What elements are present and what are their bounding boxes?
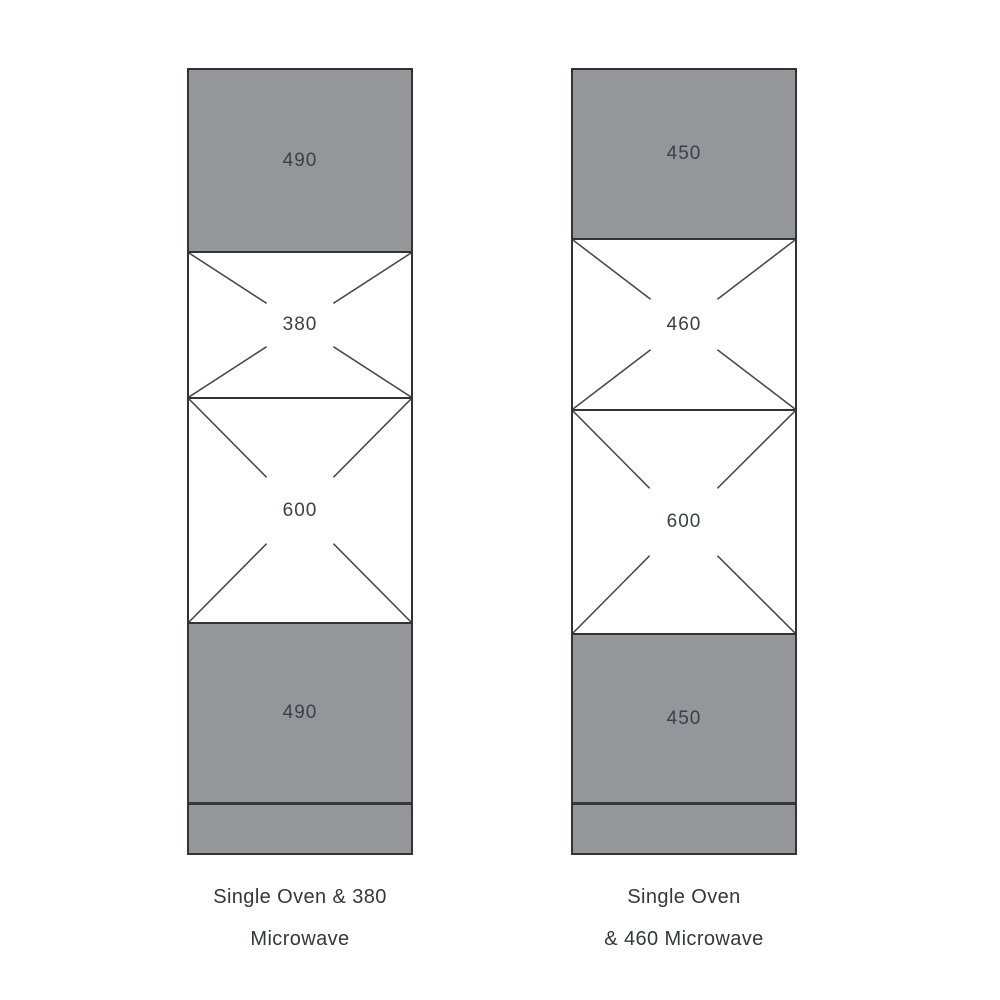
cabinet-column-380-microwave: 490 380 600 490	[187, 68, 413, 855]
caption-460-microwave: Single Oven & 460 Microwave	[524, 887, 844, 949]
dimension-label: 380	[189, 253, 411, 397]
dimension-label: 490	[189, 624, 411, 802]
dimension-label: 600	[189, 399, 411, 622]
dimension-label: 600	[573, 411, 795, 633]
dimension-label: 450	[573, 70, 795, 238]
bottom-filler-panel: 450	[573, 633, 795, 802]
oven-aperture: 600	[573, 409, 795, 633]
top-filler-panel: 490	[189, 70, 411, 251]
microwave-aperture: 460	[573, 238, 795, 409]
plinth	[573, 802, 795, 853]
caption-380-microwave: Single Oven & 380 Microwave	[140, 887, 460, 949]
cabinet-column-460-microwave: 450 460 600 450	[571, 68, 797, 855]
caption-line: Single Oven & 380	[140, 887, 460, 907]
oven-aperture: 600	[189, 397, 411, 622]
dimension-label: 450	[573, 635, 795, 802]
cabinet-elevation-diagram: 490 380 600 490 450	[0, 0, 1000, 1000]
bottom-filler-panel: 490	[189, 622, 411, 802]
top-filler-panel: 450	[573, 70, 795, 238]
dimension-label: 490	[189, 70, 411, 251]
caption-line: Single Oven	[524, 887, 844, 907]
caption-line: Microwave	[140, 929, 460, 949]
microwave-aperture: 380	[189, 251, 411, 397]
dimension-label: 460	[573, 240, 795, 409]
caption-line: & 460 Microwave	[524, 929, 844, 949]
plinth	[189, 802, 411, 853]
